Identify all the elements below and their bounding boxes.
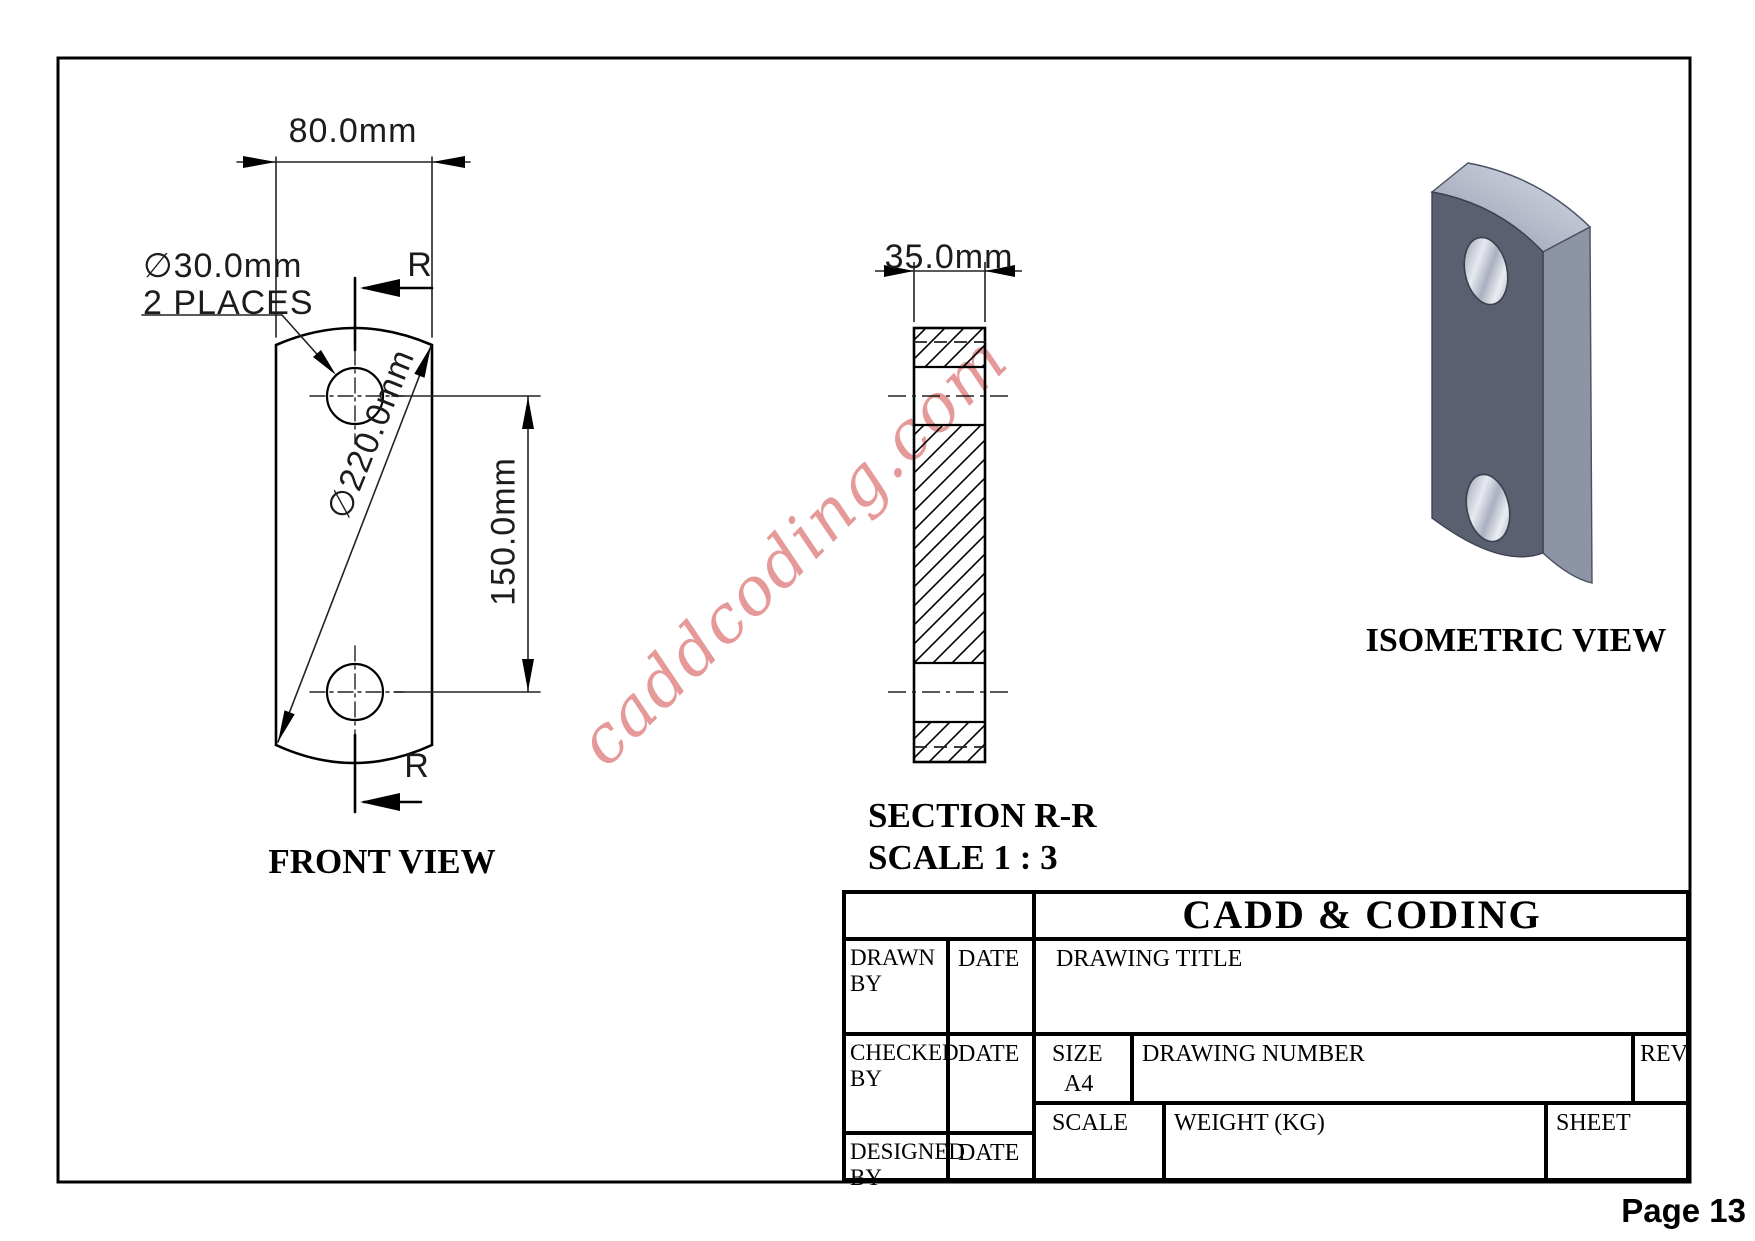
weight-cell: WEIGHT (KG) xyxy=(1164,1103,1546,1182)
drawing-title-cell: DRAWING TITLE xyxy=(1034,939,1690,1034)
front-view-label: FRONT VIEW xyxy=(232,842,532,882)
section-hatch-top xyxy=(914,328,985,367)
dim-hole-diameter: ∅30.0mm xyxy=(143,246,302,286)
dim-80-arrow-right xyxy=(432,156,465,168)
section-view-label: SECTION R-R xyxy=(868,796,1097,836)
date-designed-label: DATE xyxy=(950,1135,1032,1168)
section-arrow-bottom xyxy=(360,793,400,811)
checked-by-label: CHECKED BY xyxy=(844,1036,946,1093)
drawing-number-cell: DRAWING NUMBER xyxy=(1132,1034,1633,1103)
dim-hole-spacing: 150.0mm xyxy=(485,452,524,612)
designed-by-cell: DESIGNED BY xyxy=(842,1133,948,1182)
date-checked-label: DATE xyxy=(950,1036,1032,1069)
title-block-empty-cell xyxy=(842,890,1034,939)
dim-plate-width: 80.0mm xyxy=(253,112,453,151)
size-label: SIZE xyxy=(1036,1036,1130,1069)
section-view xyxy=(875,262,1022,762)
dim-hole-note: 2 PLACES xyxy=(143,284,314,323)
section-mark-top: R xyxy=(405,246,435,285)
company-name: CADD & CODING xyxy=(1036,892,1688,937)
company-cell: CADD & CODING xyxy=(1034,890,1690,939)
dim-150-arrow-top xyxy=(522,397,534,429)
drawing-title-label: DRAWING TITLE xyxy=(1036,941,1688,974)
rev-label: REV xyxy=(1635,1036,1688,1069)
isometric-view xyxy=(1432,163,1592,583)
sheet-cell: SHEET xyxy=(1546,1103,1690,1182)
date-drawn-label: DATE xyxy=(950,941,1032,974)
date-designed-cell: DATE xyxy=(948,1133,1034,1182)
drawn-by-cell: DRAWN BY xyxy=(842,939,948,1034)
section-mark-bottom: R xyxy=(402,747,432,786)
checked-by-cell: CHECKED BY xyxy=(842,1034,948,1133)
size-value: A4 xyxy=(1036,1069,1130,1099)
scale-cell: SCALE xyxy=(1034,1103,1164,1182)
iso-side-face xyxy=(1543,227,1592,583)
dim-thickness: 35.0mm xyxy=(849,238,1049,277)
sheet-label: SHEET xyxy=(1548,1105,1688,1138)
weight-label: WEIGHT (KG) xyxy=(1166,1105,1544,1138)
drawing-number-label: DRAWING NUMBER xyxy=(1134,1036,1631,1069)
isometric-view-label: ISOMETRIC VIEW xyxy=(1356,622,1676,660)
designed-by-label: DESIGNED BY xyxy=(844,1135,946,1192)
rev-cell: REV xyxy=(1633,1034,1690,1103)
page-number: Page 13 xyxy=(1621,1192,1746,1230)
section-hatch-middle xyxy=(914,425,985,663)
date-drawn-cell: DATE xyxy=(948,939,1034,1034)
dim-150-arrow-bottom xyxy=(522,659,534,691)
drawn-by-label: DRAWN BY xyxy=(844,941,946,998)
drawing-sheet: 80.0mm ∅30.0mm 2 PLACES R R ∅220.0mm 150… xyxy=(0,0,1755,1241)
scale-label: SCALE xyxy=(1036,1105,1162,1138)
section-scale-label: SCALE 1 : 3 xyxy=(868,838,1058,878)
section-arrow-top xyxy=(360,279,400,297)
dim-80-arrow-left xyxy=(243,156,276,168)
section-hatch-bottom xyxy=(914,722,985,762)
size-cell: SIZE A4 xyxy=(1034,1034,1132,1103)
date-checked-cell: DATE xyxy=(948,1034,1034,1133)
